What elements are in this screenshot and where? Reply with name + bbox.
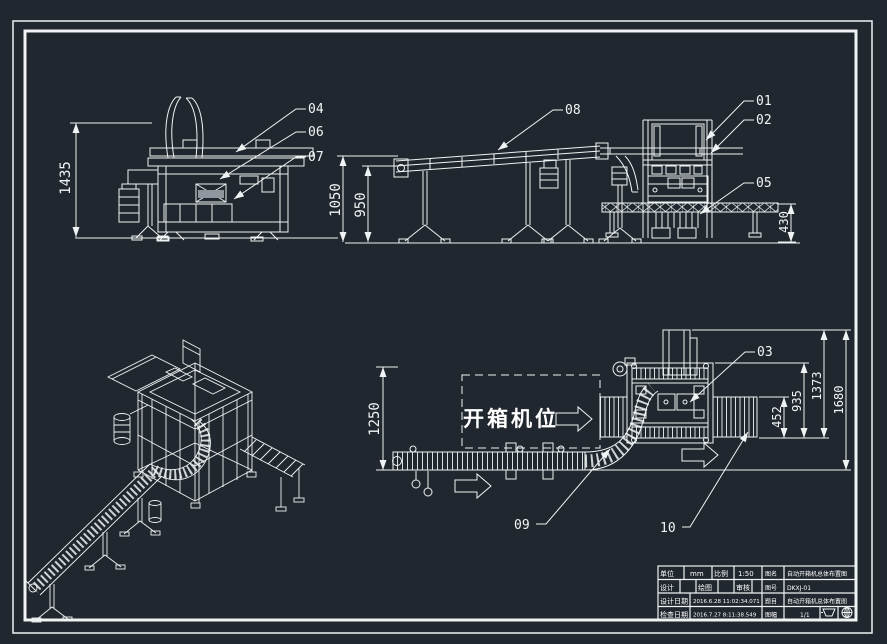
- unit-value: mm: [690, 570, 704, 578]
- callout-05-text: 05: [756, 176, 772, 191]
- cad-drawing: 1435 04 06 07: [0, 0, 887, 644]
- dimension-950: 950: [353, 166, 396, 242]
- dim-1250-text: 1250: [367, 402, 383, 436]
- dim-452-text: 452: [770, 406, 784, 428]
- first-angle-projection-icon: [821, 609, 835, 616]
- cad-viewport: 1435 04 06 07: [0, 0, 887, 644]
- scale-label: 比例: [714, 569, 728, 578]
- view-plan: 开箱机位: [367, 330, 851, 536]
- checker-label: 审核: [736, 583, 750, 592]
- dim-1435-text: 1435: [58, 161, 74, 195]
- dim-950-text: 950: [353, 192, 369, 217]
- callout-08-text: 08: [565, 103, 581, 118]
- dim-935-text: 935: [790, 390, 804, 412]
- dimension-430: 430: [777, 204, 796, 242]
- flow-arrow-station: [556, 407, 592, 431]
- callout-06-text: 06: [308, 125, 324, 140]
- callout-01-text: 01: [756, 94, 772, 109]
- station-label: 开箱机位: [463, 407, 559, 431]
- view-front-elevation: 1050 950 430 08 01 0: [328, 94, 800, 243]
- view-isometric: [24, 340, 305, 622]
- callout-02-text: 02: [756, 113, 772, 128]
- scale-value: 1:50: [738, 570, 754, 578]
- title-block: 单位 mm 比例 1:50 设计 绘图 审核 设计日期 2016.6.28 11…: [658, 566, 856, 620]
- dimension-1435: 1435: [58, 123, 152, 237]
- sheet-label: 图幅: [765, 611, 777, 619]
- project-label: 题目: [765, 599, 777, 606]
- callout-08: 08: [498, 103, 581, 150]
- design-date-label: 设计日期: [660, 597, 688, 606]
- callout-09-text: 09: [514, 518, 530, 533]
- projection-globe-icon: [842, 608, 852, 618]
- unit-label: 单位: [660, 569, 674, 578]
- dim-1050-text: 1050: [328, 183, 344, 217]
- number-label: 图号: [765, 585, 777, 592]
- callout-07-text: 07: [308, 150, 324, 165]
- drafter-label: 绘图: [698, 583, 712, 592]
- drawing-frame: [13, 21, 872, 633]
- check-date-value: 2016.7.27 8:11:38.549: [693, 613, 757, 619]
- flow-arrow-outfeed: [682, 443, 718, 467]
- project-value: 自动开箱机总体布置图: [787, 598, 847, 606]
- callout-02: 02: [711, 113, 772, 153]
- dim-1680-text: 1680: [832, 386, 846, 415]
- dim-1373-text: 1373: [810, 372, 824, 401]
- flow-arrow-infeed: [455, 474, 491, 498]
- view-side-elevation: 1435 04 06 07: [58, 97, 338, 241]
- number-value: DKXJ-01: [787, 585, 811, 592]
- callout-03-text: 03: [757, 345, 773, 360]
- design-date-value: 2016.6.28 11:02:34.071: [693, 599, 760, 605]
- name-label: 图名: [765, 570, 777, 578]
- dim-430-text: 430: [777, 211, 791, 233]
- designer-label: 设计: [660, 583, 674, 592]
- callout-10-text: 10: [660, 521, 676, 536]
- name-value: 自动开箱机总体布置图: [787, 570, 847, 578]
- sheet-value: 1/1: [800, 612, 810, 619]
- callout-04-text: 04: [308, 102, 324, 117]
- check-date-label: 检查日期: [660, 610, 688, 619]
